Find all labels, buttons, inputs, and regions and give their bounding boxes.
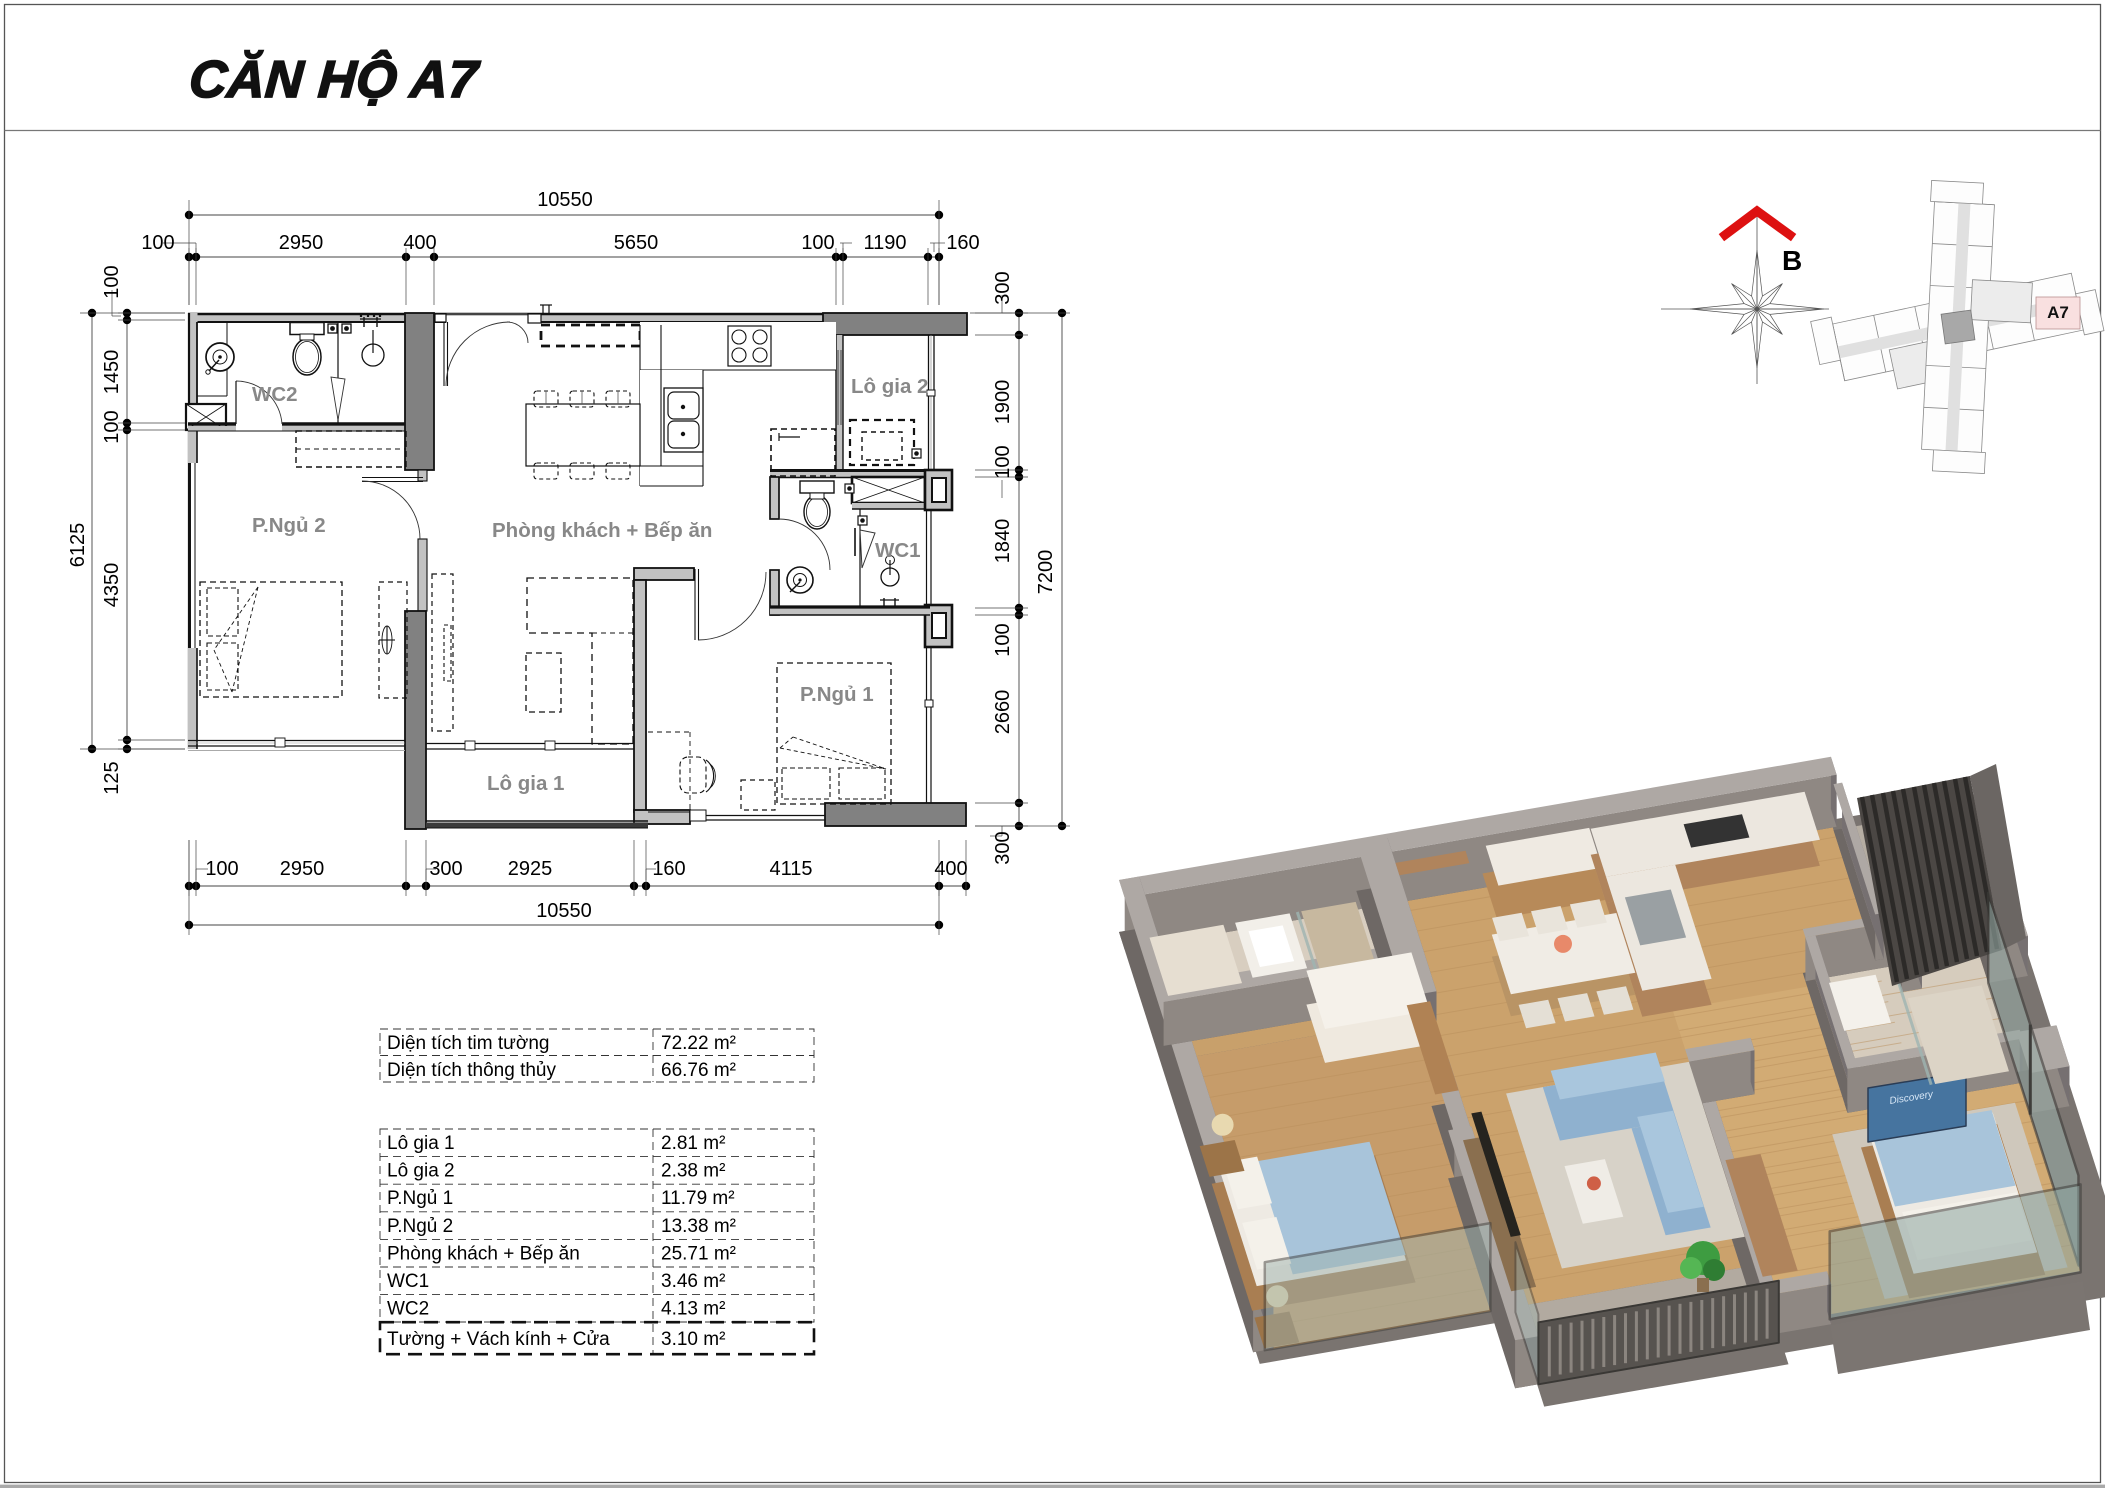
svg-text:10550: 10550 bbox=[536, 900, 592, 922]
svg-text:P.Ngủ 1: P.Ngủ 1 bbox=[800, 683, 874, 706]
svg-text:CĂN HỘ A7: CĂN HỘ A7 bbox=[187, 50, 481, 109]
svg-text:2.81 m²: 2.81 m² bbox=[661, 1133, 725, 1154]
svg-text:2660: 2660 bbox=[992, 690, 1014, 735]
svg-text:160: 160 bbox=[652, 858, 685, 880]
svg-text:Diện tích thông thủy: Diện tích thông thủy bbox=[387, 1060, 556, 1081]
svg-text:2950: 2950 bbox=[280, 858, 325, 880]
svg-text:7200: 7200 bbox=[1035, 550, 1057, 595]
svg-text:WC1: WC1 bbox=[875, 539, 921, 562]
svg-text:300: 300 bbox=[992, 271, 1014, 304]
svg-text:2.38 m²: 2.38 m² bbox=[661, 1161, 725, 1182]
svg-text:100: 100 bbox=[992, 623, 1014, 656]
svg-text:P.Ngủ 2: P.Ngủ 2 bbox=[387, 1216, 453, 1237]
svg-text:400: 400 bbox=[403, 232, 436, 254]
svg-text:3.10 m²: 3.10 m² bbox=[661, 1329, 725, 1350]
svg-text:B: B bbox=[1782, 245, 1802, 276]
svg-text:1900: 1900 bbox=[992, 380, 1014, 425]
svg-text:125: 125 bbox=[101, 761, 123, 794]
svg-text:25.71 m²: 25.71 m² bbox=[661, 1243, 736, 1264]
svg-text:WC2: WC2 bbox=[387, 1299, 429, 1320]
svg-text:Lô gia 1: Lô gia 1 bbox=[387, 1133, 455, 1154]
svg-text:100: 100 bbox=[101, 410, 123, 443]
svg-text:300: 300 bbox=[992, 831, 1014, 864]
svg-text:2925: 2925 bbox=[508, 858, 553, 880]
svg-text:1450: 1450 bbox=[101, 350, 123, 395]
svg-text:WC2: WC2 bbox=[252, 383, 298, 406]
svg-text:2950: 2950 bbox=[279, 232, 324, 254]
svg-text:100: 100 bbox=[992, 445, 1014, 478]
svg-text:100: 100 bbox=[801, 232, 834, 254]
svg-text:72.22 m²: 72.22 m² bbox=[661, 1033, 736, 1054]
svg-text:100: 100 bbox=[101, 265, 123, 298]
svg-text:66.76 m²: 66.76 m² bbox=[661, 1060, 736, 1081]
svg-text:3.46 m²: 3.46 m² bbox=[661, 1271, 725, 1292]
svg-text:Phòng khách + Bếp ăn: Phòng khách + Bếp ăn bbox=[492, 519, 712, 542]
svg-text:100: 100 bbox=[141, 232, 174, 254]
svg-text:1190: 1190 bbox=[863, 232, 906, 254]
svg-text:WC1: WC1 bbox=[387, 1271, 429, 1292]
svg-text:P.Ngủ 2: P.Ngủ 2 bbox=[252, 514, 326, 537]
svg-text:Lô gia 2: Lô gia 2 bbox=[851, 375, 928, 398]
svg-text:4350: 4350 bbox=[101, 563, 123, 608]
svg-text:Lô gia 1: Lô gia 1 bbox=[487, 772, 564, 795]
svg-text:Tường + Vách kính + Cửa: Tường + Vách kính + Cửa bbox=[387, 1329, 610, 1350]
svg-text:100: 100 bbox=[205, 858, 238, 880]
svg-text:300: 300 bbox=[429, 858, 462, 880]
svg-text:13.38 m²: 13.38 m² bbox=[661, 1216, 736, 1237]
svg-text:11.79 m²: 11.79 m² bbox=[661, 1188, 735, 1209]
svg-text:Phòng khách + Bếp ăn: Phòng khách + Bếp ăn bbox=[387, 1243, 580, 1264]
svg-text:10550: 10550 bbox=[537, 189, 593, 211]
svg-text:Lô gia 2: Lô gia 2 bbox=[387, 1161, 455, 1182]
svg-text:400: 400 bbox=[934, 858, 967, 880]
svg-text:4.13 m²: 4.13 m² bbox=[661, 1299, 725, 1320]
svg-text:A7: A7 bbox=[2047, 303, 2069, 322]
svg-text:Diện tích tim tường: Diện tích tim tường bbox=[387, 1033, 549, 1054]
svg-text:1840: 1840 bbox=[992, 519, 1014, 564]
svg-text:160: 160 bbox=[946, 232, 979, 254]
svg-text:5650: 5650 bbox=[614, 232, 659, 254]
svg-text:4115: 4115 bbox=[769, 858, 812, 880]
svg-text:P.Ngủ 1: P.Ngủ 1 bbox=[387, 1188, 453, 1209]
svg-text:6125: 6125 bbox=[67, 523, 89, 568]
